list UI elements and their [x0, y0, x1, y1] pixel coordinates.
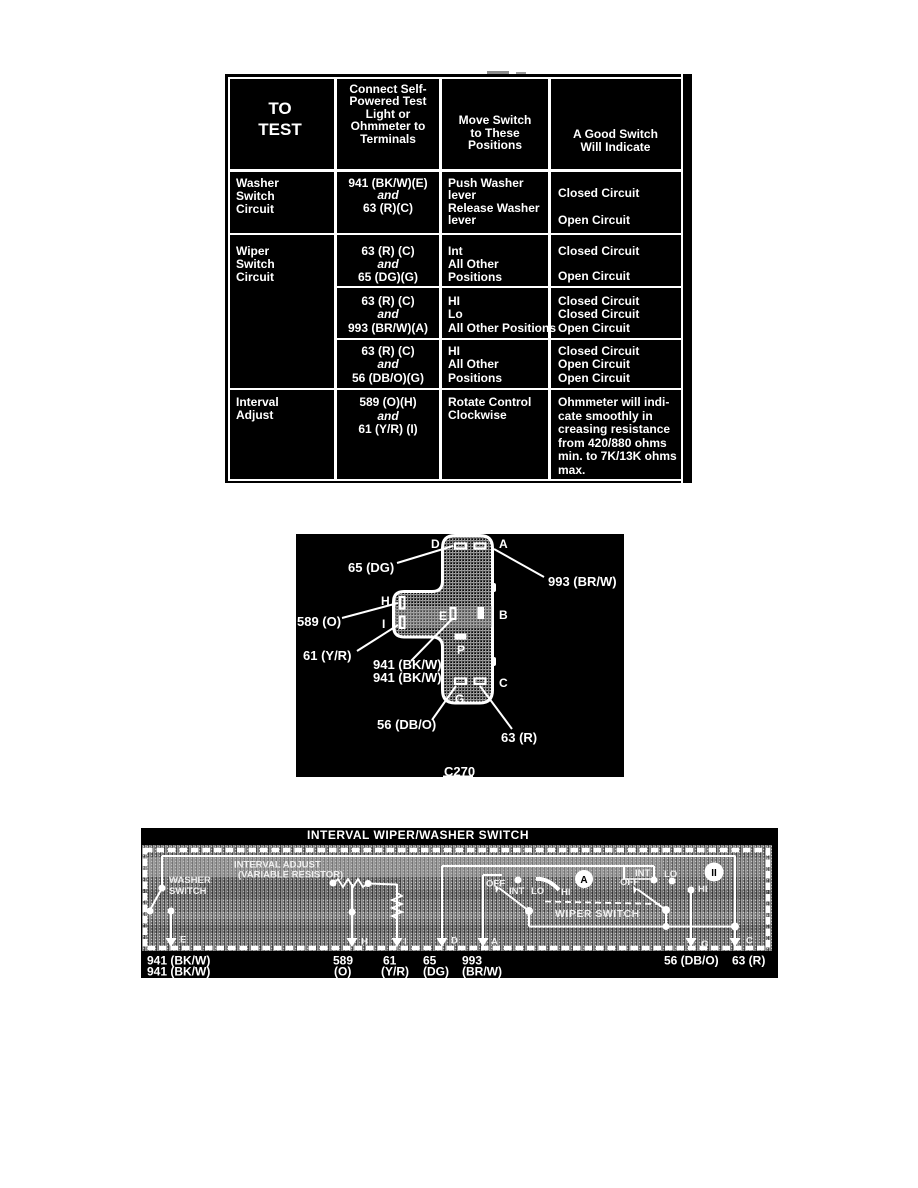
- svg-text:(VARIABLE RESISTOR): (VARIABLE RESISTOR): [238, 870, 343, 881]
- svg-text:INT: INT: [635, 868, 651, 879]
- svg-text:941 (BK/W): 941 (BK/W): [147, 965, 210, 979]
- svg-text:993 (BR/W): 993 (BR/W): [548, 574, 617, 589]
- svg-text:(DG): (DG): [423, 965, 449, 979]
- svg-text:H: H: [381, 594, 390, 608]
- svg-text:941 (BK/W): 941 (BK/W): [373, 670, 442, 685]
- svg-text:LO: LO: [664, 869, 677, 880]
- svg-text:G: G: [701, 939, 708, 950]
- svg-text:C270: C270: [444, 764, 475, 777]
- svg-text:I: I: [404, 937, 407, 948]
- svg-text:G: G: [455, 692, 464, 706]
- svg-text:63 (R): 63 (R): [732, 954, 765, 968]
- svg-text:56 (DB/O): 56 (DB/O): [377, 717, 436, 732]
- svg-text:(O): (O): [334, 965, 351, 979]
- svg-text:HI: HI: [561, 887, 571, 898]
- svg-text:H: H: [361, 937, 368, 948]
- svg-text:63 (R): 63 (R): [501, 730, 537, 745]
- svg-text:P: P: [457, 643, 465, 657]
- svg-text:II: II: [711, 868, 717, 879]
- svg-text:INT: INT: [509, 886, 525, 897]
- svg-text:WASHER: WASHER: [169, 875, 211, 886]
- svg-text:INTERVAL WIPER/WASHER SWITCH: INTERVAL WIPER/WASHER SWITCH: [307, 828, 529, 842]
- svg-text:A: A: [491, 937, 498, 948]
- svg-text:56 (DB/O): 56 (DB/O): [664, 954, 719, 968]
- svg-text:A: A: [499, 537, 508, 551]
- svg-text:(Y/R): (Y/R): [381, 965, 409, 979]
- svg-text:LO: LO: [531, 886, 544, 897]
- svg-text:61 (Y/R): 61 (Y/R): [303, 648, 351, 663]
- svg-text:D: D: [451, 936, 458, 947]
- svg-text:I: I: [382, 617, 385, 631]
- svg-text:D: D: [431, 537, 440, 551]
- svg-text:C: C: [746, 936, 753, 947]
- svg-text:WIPER SWITCH: WIPER SWITCH: [555, 908, 640, 920]
- svg-text:B: B: [499, 608, 508, 622]
- svg-text:SWITCH: SWITCH: [169, 886, 207, 897]
- svg-text:C: C: [499, 676, 508, 690]
- svg-text:589 (O): 589 (O): [297, 614, 341, 629]
- svg-text:OFF: OFF: [486, 879, 505, 890]
- svg-text:HI: HI: [698, 884, 708, 895]
- svg-text:(BR/W): (BR/W): [462, 965, 502, 979]
- svg-text:E: E: [180, 935, 186, 946]
- svg-text:A: A: [580, 875, 587, 886]
- svg-text:E: E: [439, 609, 447, 623]
- svg-text:65 (DG): 65 (DG): [348, 560, 394, 575]
